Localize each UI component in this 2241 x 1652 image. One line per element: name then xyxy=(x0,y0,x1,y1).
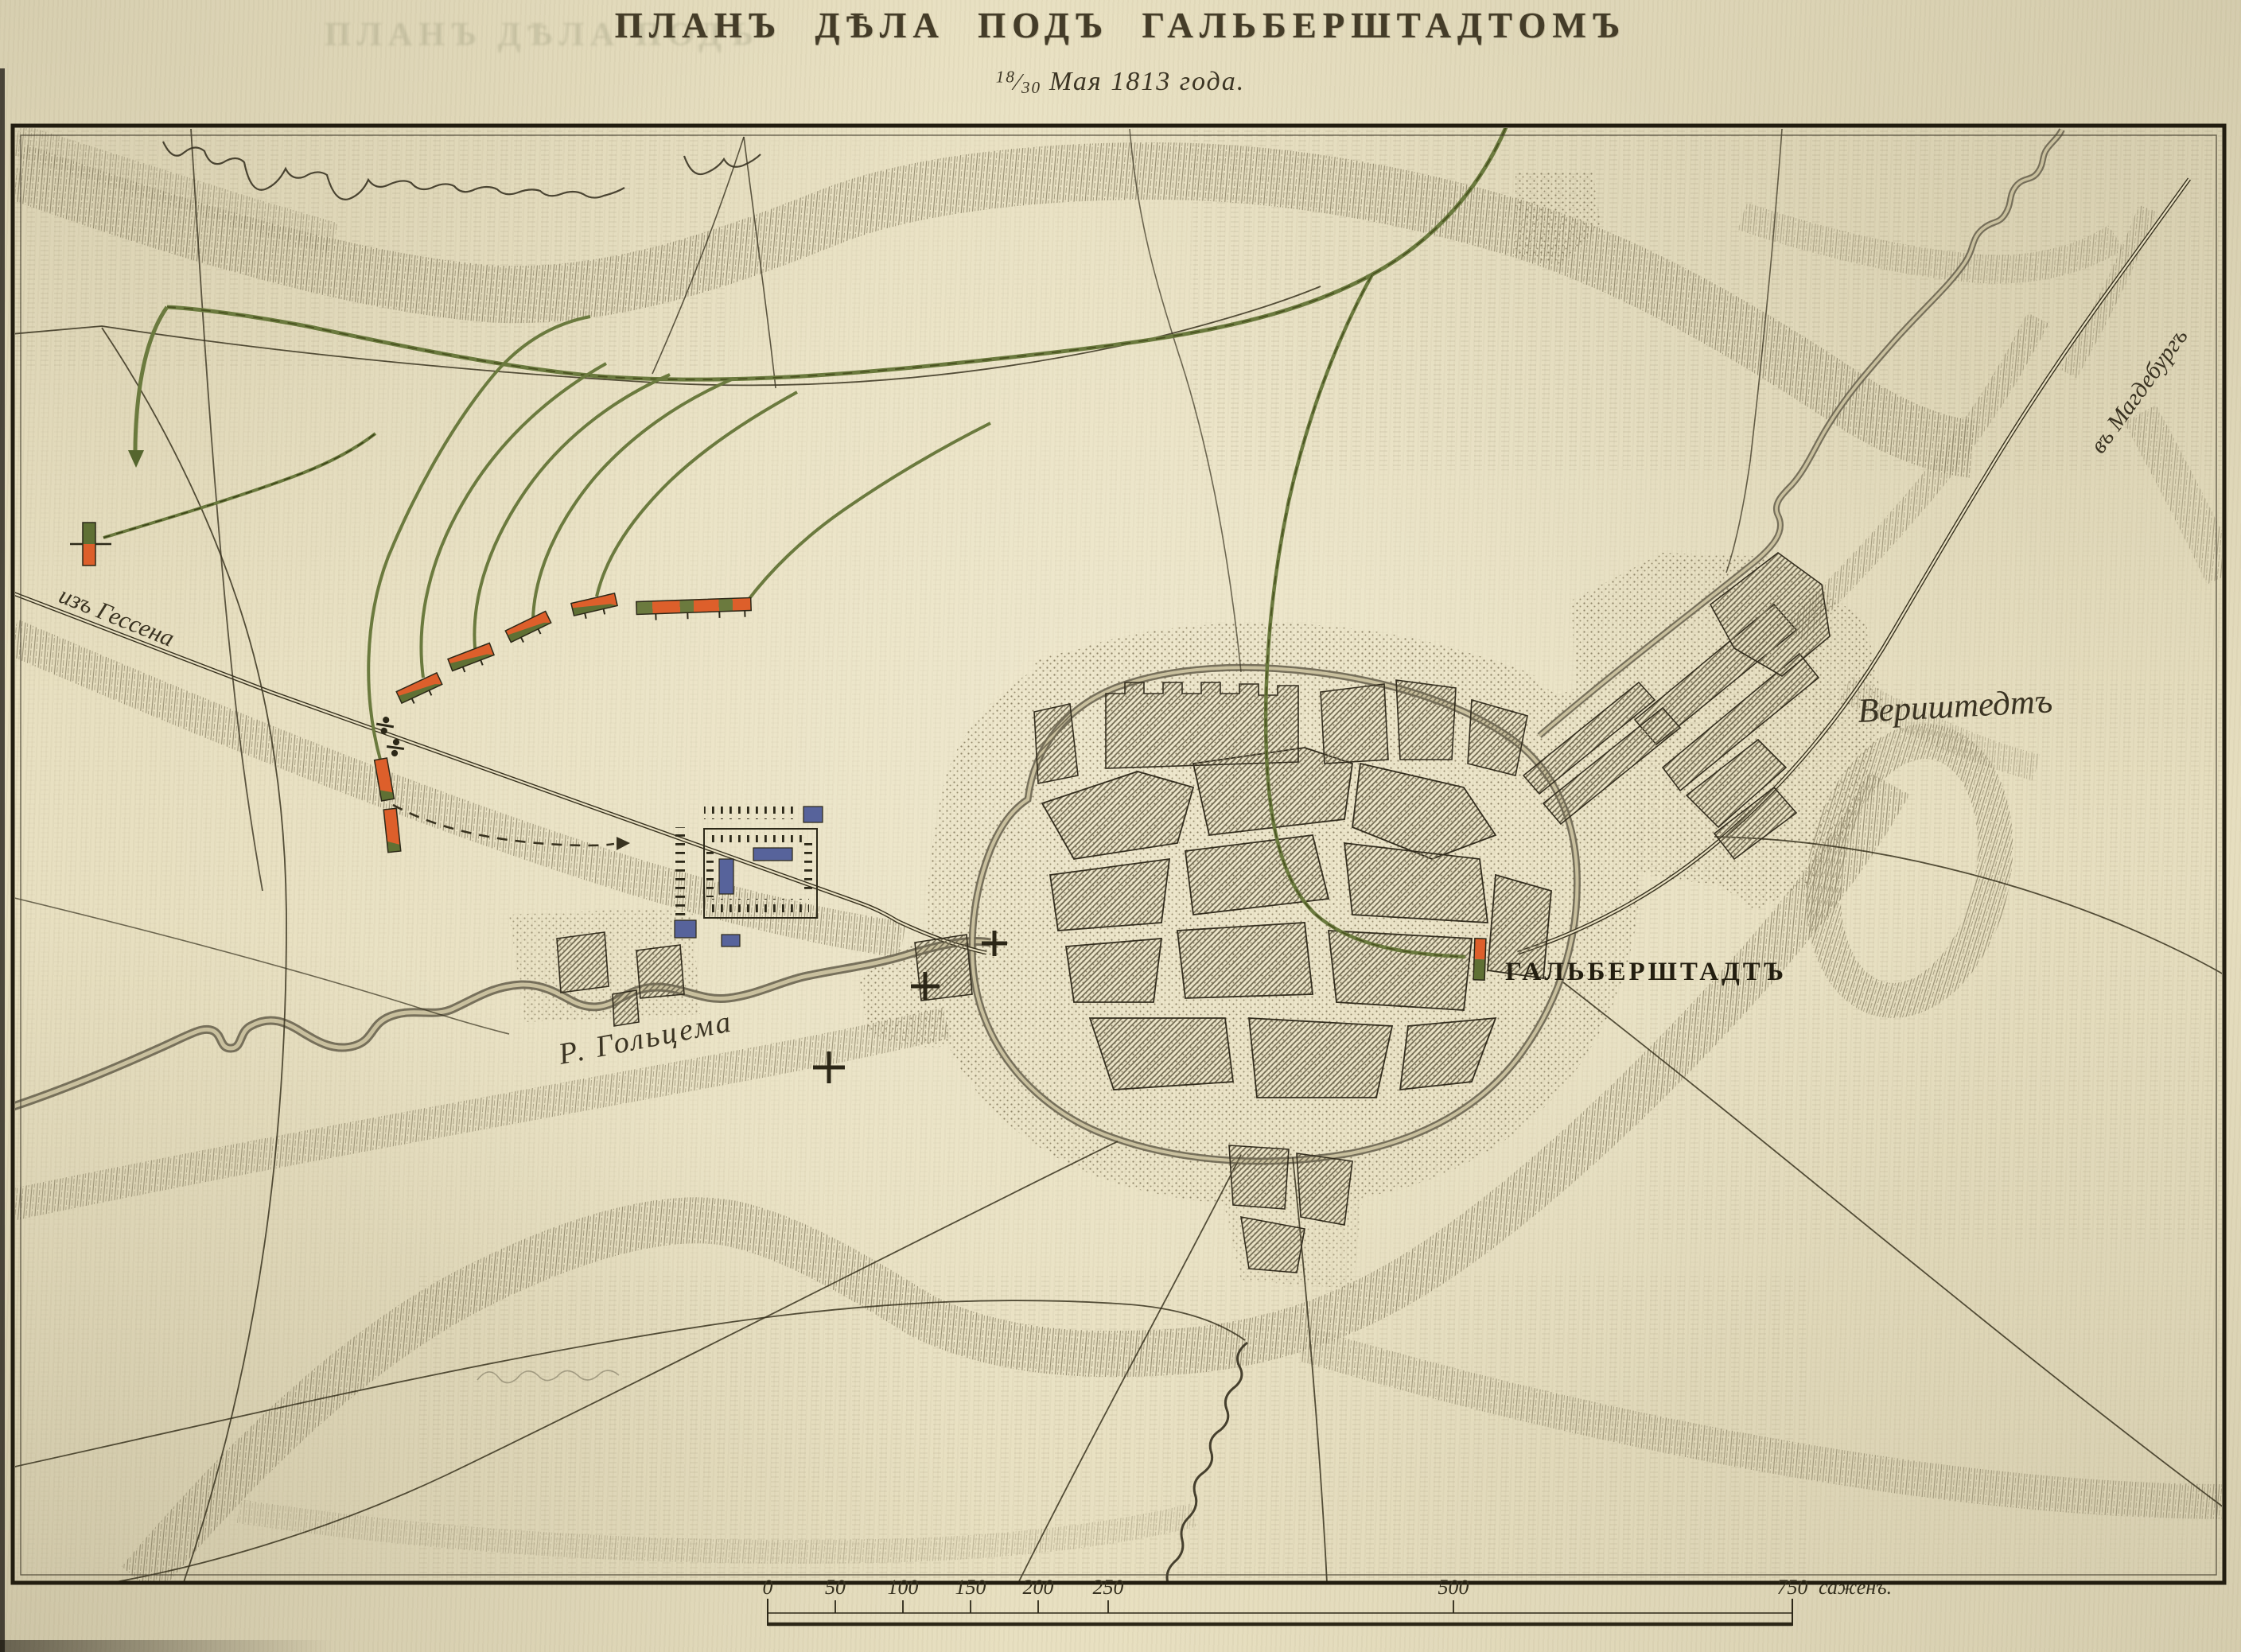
unit-marker xyxy=(1473,939,1486,980)
scale-tick-label: 250 xyxy=(1093,1576,1124,1599)
label-city: ГАЛЬБЕРШТАДТЪ xyxy=(1505,958,1787,986)
scale-tick-label: 750 xyxy=(1777,1576,1808,1599)
scale-tick-label: 150 xyxy=(955,1576,986,1599)
scale-tick-label: 200 xyxy=(1023,1576,1054,1599)
unit-marker xyxy=(83,523,95,566)
scale-tick-label: 500 xyxy=(1438,1576,1469,1599)
map-sheet: ПЛАНЪ ДѢЛА ПОДЪ ПЛАНЪ ДѢЛА ПОДЪ ГАЛЬБЕРШ… xyxy=(0,0,2241,1652)
scale-tick-label: 0 xyxy=(763,1576,773,1599)
map-canvas: изъ Гессена Р. Гольцема ГАЛЬБЕРШТАДТЪ Ве… xyxy=(0,0,2241,1652)
scale-tick-label: 100 xyxy=(888,1576,919,1599)
scale-unit-label: саженъ. xyxy=(1819,1576,1892,1599)
scale-tick-label: 50 xyxy=(825,1576,846,1599)
